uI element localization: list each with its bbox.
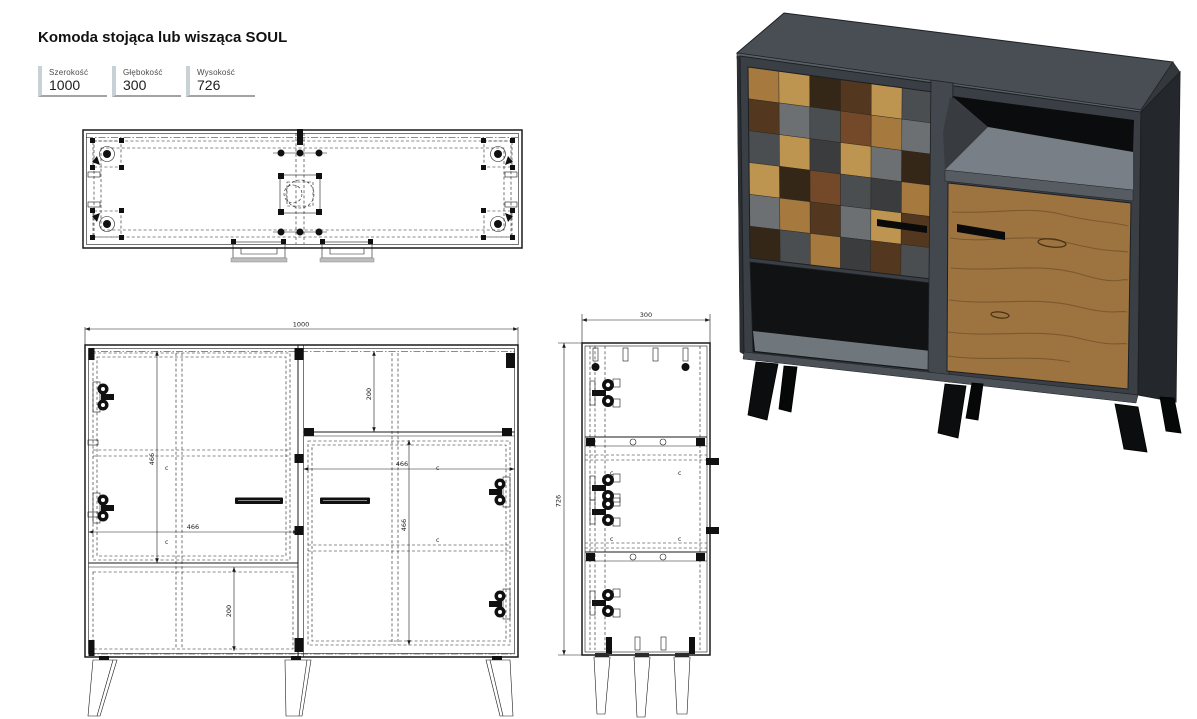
dimension-value: 1000 bbox=[49, 77, 107, 93]
marker-c: c bbox=[610, 536, 613, 543]
right-side-panel bbox=[1138, 72, 1180, 402]
dim-label: 466 bbox=[400, 519, 408, 531]
hinge-icon bbox=[489, 477, 510, 507]
dimension-cell-height: Wysokość 726 bbox=[186, 66, 255, 97]
dim-label: 200 bbox=[225, 605, 233, 617]
hinge-icon bbox=[489, 589, 510, 619]
hinge-icon bbox=[590, 379, 620, 407]
dimension-cell-width: Szerokość 1000 bbox=[38, 66, 107, 97]
dimension-label: Szerokość bbox=[49, 68, 107, 77]
marker-c: c bbox=[436, 465, 439, 472]
dim-depth-label: 300 bbox=[640, 311, 652, 319]
dimension-table: Szerokość 1000 Głębokość 300 Wysokość 72… bbox=[38, 66, 255, 97]
product-render-3d bbox=[700, 0, 1197, 460]
spec-sheet-page: Komoda stojąca lub wisząca SOUL Szerokoś… bbox=[0, 0, 1197, 719]
hinge-icon bbox=[93, 382, 114, 412]
dimension-value: 300 bbox=[123, 77, 181, 93]
marker-c: c bbox=[165, 539, 168, 546]
dimension-cell-depth: Głębokość 300 bbox=[112, 66, 181, 97]
leg bbox=[285, 660, 311, 716]
side-view-drawing: 300 726 bbox=[548, 300, 720, 719]
marker-c: c bbox=[436, 537, 439, 544]
dim-label: 466 bbox=[148, 453, 156, 465]
dimension-label: Wysokość bbox=[197, 68, 255, 77]
dim-label: 466 bbox=[396, 460, 408, 468]
front-view-drawing: 1000 bbox=[72, 322, 524, 719]
marker-c: c bbox=[678, 536, 681, 543]
dim-width-label: 1000 bbox=[293, 321, 310, 329]
marker-c: c bbox=[165, 465, 168, 472]
right-door-oak bbox=[947, 183, 1131, 389]
dim-label: 200 bbox=[365, 388, 373, 400]
hinge-icon bbox=[590, 589, 620, 617]
door-handle bbox=[706, 527, 719, 534]
hinge-icon bbox=[93, 493, 114, 523]
marker-c: c bbox=[610, 470, 613, 477]
dimension-label: Głębokość bbox=[123, 68, 181, 77]
dimension-value: 726 bbox=[197, 77, 255, 93]
leg bbox=[88, 660, 117, 716]
wall-rail-bracket bbox=[231, 239, 287, 262]
page-title: Komoda stojąca lub wisząca SOUL bbox=[38, 29, 287, 46]
marker-c: c bbox=[678, 470, 681, 477]
wall-rail-bracket bbox=[320, 239, 374, 262]
dim-label: 466 bbox=[187, 523, 199, 531]
dim-height-label: 726 bbox=[555, 495, 563, 507]
left-door-checker-pattern bbox=[748, 67, 933, 279]
top-view-drawing bbox=[75, 120, 535, 270]
leg bbox=[594, 657, 690, 717]
leg bbox=[486, 660, 513, 716]
